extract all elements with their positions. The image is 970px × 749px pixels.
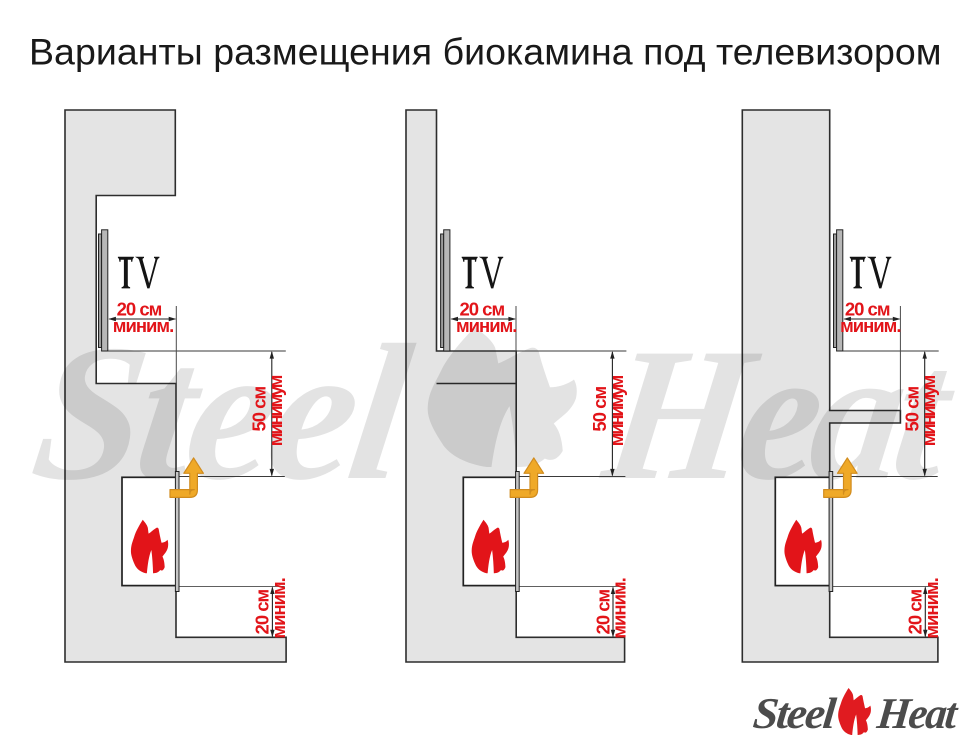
svg-text:Steel: Steel — [22, 305, 423, 521]
svg-text:минимум: минимум — [606, 375, 627, 446]
svg-text:Heat: Heat — [874, 690, 961, 739]
svg-text:миним.: миним. — [268, 578, 289, 638]
svg-text:миним.: миним. — [840, 315, 900, 336]
svg-text:Варианты размещения биокамина: Варианты размещения биокамина под телеви… — [29, 31, 942, 73]
svg-text:миним.: миним. — [921, 578, 942, 638]
svg-text:миним.: миним. — [456, 315, 516, 336]
svg-text:миним.: миним. — [609, 578, 630, 638]
svg-text:миним.: миним. — [113, 315, 173, 336]
svg-text:минимум: минимум — [265, 375, 286, 446]
svg-text:минимум: минимум — [918, 375, 939, 446]
svg-text:Steel: Steel — [751, 689, 839, 738]
